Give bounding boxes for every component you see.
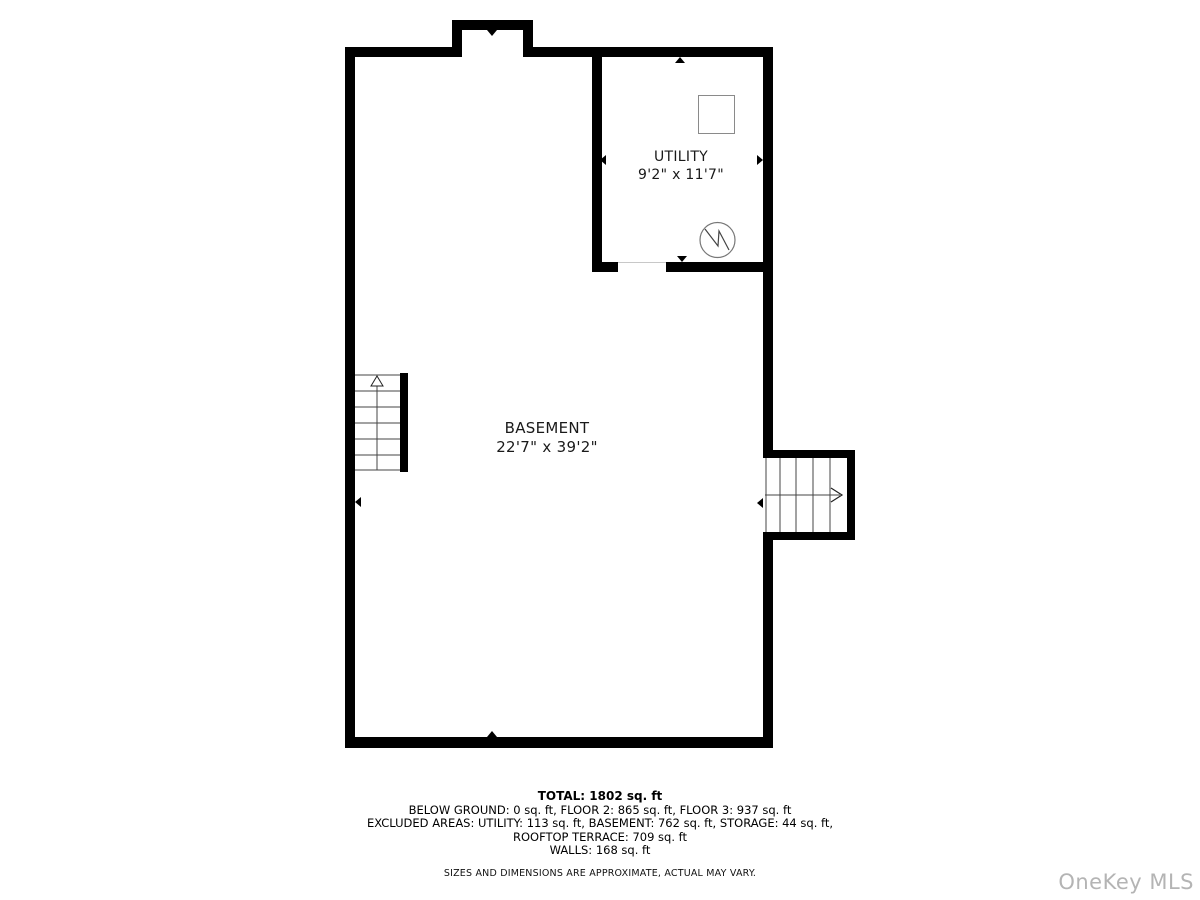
utility-wall-bottom [666,262,773,272]
wall-bump-left [452,20,462,57]
below-ground-line: BELOW GROUND: 0 sq. ft, FLOOR 2: 865 sq.… [300,804,900,818]
left-staircase-treads [355,375,400,470]
stair-entry-marker [757,498,763,508]
up-arrow-icon [371,376,383,386]
electric-meter-icon [698,221,738,261]
utility-door-threshold [618,262,666,263]
right-staircase-treads [765,458,840,532]
basement-room-dimensions: 22'7" x 39'2" [457,438,637,457]
basement-room-label: BASEMENT 22'7" x 39'2" [457,419,637,456]
wall-right-lower [763,540,773,748]
left-staircase [355,373,400,472]
wall-left [345,47,355,748]
area-summary: TOTAL: 1802 sq. ft BELOW GROUND: 0 sq. f… [300,790,900,858]
stairbump-wall-bottom [763,532,855,540]
disclaimer-text: SIZES AND DIMENSIONS ARE APPROXIMATE, AC… [300,868,900,879]
basement-room-name: BASEMENT [457,419,637,438]
excluded-areas-line: EXCLUDED AREAS: UTILITY: 113 sq. ft, BAS… [300,817,900,831]
water-heater-icon [698,95,735,134]
rooftop-terrace-line: ROOFTOP TERRACE: 709 sq. ft [300,831,900,845]
utility-room-dimensions: 9'2" x 11'7" [601,166,761,184]
stairbump-wall-right [847,450,855,540]
bottom-wall-opening-marker [487,731,497,737]
walls-line: WALLS: 168 sq. ft [300,844,900,858]
wall-bottom [345,737,773,748]
left-wall-opening-marker [355,497,361,507]
utility-top-opening-marker [675,57,685,63]
right-staircase [765,458,847,532]
total-area-line: TOTAL: 1802 sq. ft [300,790,900,804]
utility-room-label: UTILITY 9'2" x 11'7" [601,148,761,184]
stairbump-wall-top [763,450,855,458]
wall-bump-top [452,20,533,30]
wall-top-right-segment [533,47,773,57]
wall-right-upper [763,47,773,450]
floor-plan-page: UTILITY 9'2" x 11'7" BASEMENT 22'7" x 39… [0,0,1200,900]
onekey-mls-watermark: OneKey MLS [1058,870,1194,894]
wall-bump-right [523,20,533,57]
wall-top-left-segment [345,47,452,57]
utility-wall-bottom-stub [592,262,618,272]
left-staircase-side-wall [400,373,408,472]
top-bump-opening-marker [487,30,497,36]
utility-door-marker [677,256,687,262]
utility-room-name: UTILITY [601,148,761,166]
